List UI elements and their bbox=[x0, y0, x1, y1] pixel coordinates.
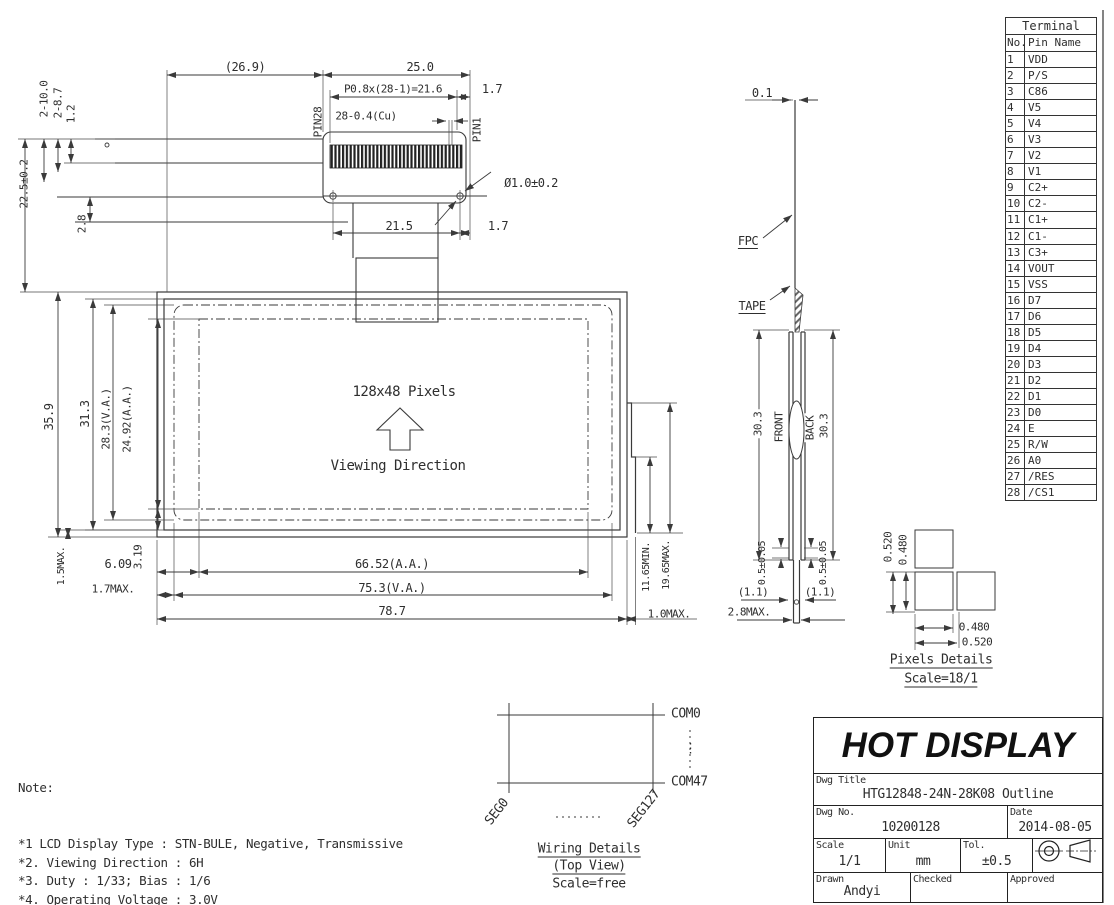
dim-0-5-left: 0.5±0.05 bbox=[758, 541, 768, 585]
terminal-pin-no: 14 bbox=[1006, 261, 1025, 276]
dim-0-1: 0.1 bbox=[752, 87, 772, 99]
terminal-row: 27/RES bbox=[1006, 469, 1096, 485]
terminal-pin-no: 4 bbox=[1006, 100, 1025, 115]
terminal-pin-no: 27 bbox=[1006, 469, 1025, 484]
terminal-pin-name: V2 bbox=[1025, 148, 1096, 163]
terminal-pin-name: VDD bbox=[1025, 52, 1096, 67]
terminal-row: 26A0 bbox=[1006, 453, 1096, 469]
unit-value: mm bbox=[886, 854, 960, 869]
tol-value: ±0.5 bbox=[961, 854, 1032, 869]
dim-28-3-va: 28.3(V.A.) bbox=[101, 388, 112, 449]
tape-hatch bbox=[795, 288, 803, 332]
terminal-pin-name: D5 bbox=[1025, 325, 1096, 340]
terminal-pin-no: 19 bbox=[1006, 341, 1025, 356]
terminal-row: 17D6 bbox=[1006, 309, 1096, 325]
dim-2-10-0: 2-10.0 bbox=[39, 81, 50, 118]
terminal-rows: 1VDD2P/S3C864V55V46V37V28V19C2+10C2-11C1… bbox=[1006, 52, 1096, 500]
company-logo: HOT DISPLAY bbox=[814, 718, 1102, 773]
pixels-details-scale: Scale=18/1 bbox=[904, 673, 977, 688]
dim-2-8-7: 2-8.7 bbox=[53, 88, 64, 119]
terminal-row: 22D1 bbox=[1006, 389, 1096, 405]
terminal-row: 12C1- bbox=[1006, 229, 1096, 245]
note-line: *1 LCD Display Type : STN-BULE, Negative… bbox=[18, 835, 403, 854]
terminal-pin-name: D0 bbox=[1025, 405, 1096, 420]
terminal-table-title: Terminal bbox=[1006, 18, 1096, 35]
dim-1-2: 1.2 bbox=[66, 105, 77, 123]
dim-2-8: 2.8 bbox=[77, 215, 88, 233]
terminal-row: 9C2+ bbox=[1006, 180, 1096, 196]
terminal-pin-no: 16 bbox=[1006, 293, 1025, 308]
dim-6-09: 6.09 bbox=[105, 558, 132, 570]
terminal-row: 6V3 bbox=[1006, 132, 1096, 148]
dwg-title-label: Dwg Title bbox=[816, 775, 866, 786]
pixels-count-label: 128x48 Pixels bbox=[352, 385, 455, 399]
notes-block: Note: *1 LCD Display Type : STN-BULE, Ne… bbox=[18, 742, 403, 905]
terminal-pin-no: 5 bbox=[1006, 116, 1025, 131]
dim-hole-dia: Ø1.0±0.2 bbox=[504, 177, 558, 189]
dim-3-19: 3.19 bbox=[133, 545, 144, 570]
side-view-oval bbox=[789, 401, 804, 459]
terminal-pin-no: 26 bbox=[1006, 453, 1025, 468]
fpc-pin-contacts bbox=[330, 145, 462, 168]
terminal-row: 5V4 bbox=[1006, 116, 1096, 132]
terminal-row: 25R/W bbox=[1006, 437, 1096, 453]
terminal-pin-no: 7 bbox=[1006, 148, 1025, 163]
pixel-dim-0-520-v: 0.520 bbox=[883, 532, 894, 563]
terminal-row: 7V2 bbox=[1006, 148, 1096, 164]
dim-0-5-right: 0.5±0.05 bbox=[819, 541, 829, 585]
com47-label: COM47 bbox=[671, 776, 708, 789]
lcd-module-outline bbox=[157, 292, 636, 537]
fpc-label: FPC bbox=[738, 235, 758, 249]
terminal-pin-name: D1 bbox=[1025, 389, 1096, 404]
terminal-pin-name: P/S bbox=[1025, 68, 1096, 83]
terminal-row: 8V1 bbox=[1006, 164, 1096, 180]
dim-1-7-top: 1.7 bbox=[482, 83, 502, 95]
terminal-row: 21D2 bbox=[1006, 373, 1096, 389]
pixel-squares bbox=[915, 530, 995, 610]
wiring-diagram bbox=[497, 703, 690, 817]
pixel-dim-0-480-h: 0.480 bbox=[959, 622, 990, 633]
approved-label: Approved bbox=[1010, 874, 1054, 885]
wiring-details-title: Wiring Details bbox=[538, 843, 641, 858]
date-value: 2014-08-05 bbox=[1008, 820, 1102, 835]
notes-lines: *1 LCD Display Type : STN-BULE, Negative… bbox=[18, 835, 403, 905]
dim-30-3-left: 30.3 bbox=[753, 410, 764, 439]
terminal-pin-no: 1 bbox=[1006, 52, 1025, 67]
dim-24-92-aa: 24.92(A.A.) bbox=[122, 385, 133, 452]
terminal-pin-name: V1 bbox=[1025, 164, 1096, 179]
tape-label: TAPE bbox=[739, 300, 766, 314]
terminal-pin-name: V4 bbox=[1025, 116, 1096, 131]
terminal-pin-name: D4 bbox=[1025, 341, 1096, 356]
terminal-row: 16D7 bbox=[1006, 293, 1096, 309]
terminal-pin-no: 22 bbox=[1006, 389, 1025, 404]
terminal-pin-no: 21 bbox=[1006, 373, 1025, 388]
dim-1-7max: 1.7MAX. bbox=[92, 584, 135, 595]
terminal-pin-name: V5 bbox=[1025, 100, 1096, 115]
scale-label: Scale bbox=[816, 840, 844, 851]
terminal-pin-name: A0 bbox=[1025, 453, 1096, 468]
dwg-no-value: 10200128 bbox=[814, 820, 1007, 835]
terminal-table-header: No. Pin Name bbox=[1006, 35, 1096, 52]
com0-label: COM0 bbox=[671, 708, 700, 721]
unit-label: Unit bbox=[888, 840, 910, 851]
terminal-row: 14VOUT bbox=[1006, 261, 1096, 277]
dim-11-65min: 11.65MIN. bbox=[642, 542, 652, 592]
terminal-row: 4V5 bbox=[1006, 100, 1096, 116]
terminal-pin-name: /RES bbox=[1025, 469, 1096, 484]
terminal-pin-no: 25 bbox=[1006, 437, 1025, 452]
terminal-row: 19D4 bbox=[1006, 341, 1096, 357]
dim-1-7-mid: 1.7 bbox=[488, 220, 508, 232]
terminal-pin-no: 2 bbox=[1006, 68, 1025, 83]
checked-label: Checked bbox=[913, 874, 952, 885]
dim-1-1-left: (1.1) bbox=[738, 587, 769, 598]
note-line: *3. Duty : 1/33; Bias : 1/6 bbox=[18, 872, 403, 891]
side-view-outline bbox=[789, 100, 805, 623]
terminal-pin-name: C3+ bbox=[1025, 245, 1096, 260]
pin1-label: PIN1 bbox=[472, 118, 483, 143]
terminal-col-pin: Pin Name bbox=[1025, 35, 1096, 51]
terminal-pin-no: 11 bbox=[1006, 212, 1025, 227]
tol-label: Tol. bbox=[963, 840, 985, 851]
terminal-pin-name: VOUT bbox=[1025, 261, 1096, 276]
dim-1-5max: 1.5MAX. bbox=[57, 547, 67, 586]
terminal-row: 10C2- bbox=[1006, 196, 1096, 212]
viewing-active-area bbox=[174, 305, 612, 520]
terminal-pin-name: R/W bbox=[1025, 437, 1096, 452]
terminal-row: 15VSS bbox=[1006, 277, 1096, 293]
pin28-label: PIN28 bbox=[313, 107, 324, 138]
terminal-pin-name: C86 bbox=[1025, 84, 1096, 99]
terminal-pin-name: C2+ bbox=[1025, 180, 1096, 195]
terminal-pin-no: 10 bbox=[1006, 196, 1025, 211]
terminal-pin-name: /CS1 bbox=[1025, 485, 1096, 500]
com-ellipsis: ⋮ bbox=[684, 743, 697, 756]
dim-22-5: 22.5±0.2 bbox=[19, 160, 30, 209]
viewing-direction-arrow bbox=[377, 408, 423, 450]
front-label: FRONT bbox=[774, 410, 785, 445]
terminal-pin-no: 20 bbox=[1006, 357, 1025, 372]
drawn-value: Andyi bbox=[814, 884, 910, 899]
dim-66-52-aa: 66.52(A.A.) bbox=[355, 558, 429, 570]
terminal-pin-no: 3 bbox=[1006, 84, 1025, 99]
terminal-pin-name: C1+ bbox=[1025, 212, 1096, 227]
terminal-pin-name: D7 bbox=[1025, 293, 1096, 308]
terminal-row: 2P/S bbox=[1006, 68, 1096, 84]
terminal-row: 28/CS1 bbox=[1006, 485, 1096, 500]
terminal-pin-no: 9 bbox=[1006, 180, 1025, 195]
terminal-row: 20D3 bbox=[1006, 357, 1096, 373]
dim-75-3-va: 75.3(V.A.) bbox=[358, 582, 425, 594]
dwg-title-value: HTG12848-24N-28K08 Outline bbox=[814, 787, 1102, 802]
title-block: HOT DISPLAY Dwg Title HTG12848-24N-28K08… bbox=[813, 717, 1103, 903]
dim-overall-26-9: (26.9) bbox=[225, 61, 265, 73]
terminal-pin-name: VSS bbox=[1025, 277, 1096, 292]
terminal-pin-name: V3 bbox=[1025, 132, 1096, 147]
terminal-col-no: No. bbox=[1006, 35, 1025, 51]
viewing-direction-label: Viewing Direction bbox=[331, 459, 466, 473]
terminal-pin-name: D3 bbox=[1025, 357, 1096, 372]
dwg-no-label: Dwg No. bbox=[816, 807, 855, 818]
pixels-details-title: Pixels Details bbox=[890, 654, 993, 669]
terminal-pin-no: 8 bbox=[1006, 164, 1025, 179]
notes-title: Note: bbox=[18, 779, 403, 798]
dim-21-5: 21.5 bbox=[386, 220, 413, 232]
pixel-dim-0-520-h: 0.520 bbox=[962, 637, 993, 648]
dim-1-0max: 1.0MAX. bbox=[648, 609, 691, 620]
terminal-row: 18D5 bbox=[1006, 325, 1096, 341]
wiring-details-subtitle: (Top View) bbox=[552, 860, 625, 875]
terminal-pin-no: 24 bbox=[1006, 421, 1025, 436]
note-line: *2. Viewing Direction : 6H bbox=[18, 854, 403, 873]
back-label: BACK bbox=[805, 414, 816, 443]
terminal-pin-no: 13 bbox=[1006, 245, 1025, 260]
terminal-pin-no: 6 bbox=[1006, 132, 1025, 147]
scale-value: 1/1 bbox=[814, 854, 885, 869]
terminal-pin-no: 23 bbox=[1006, 405, 1025, 420]
terminal-row: 23D0 bbox=[1006, 405, 1096, 421]
terminal-pin-no: 28 bbox=[1006, 485, 1025, 500]
dim-1-1-right: (1.1) bbox=[805, 587, 836, 598]
terminal-row: 3C86 bbox=[1006, 84, 1096, 100]
dim-31-3: 31.3 bbox=[79, 401, 91, 428]
wiring-details-scale: Scale=free bbox=[552, 878, 625, 891]
dim-78-7: 78.7 bbox=[379, 605, 406, 617]
terminal-pin-name: E bbox=[1025, 421, 1096, 436]
terminal-table: Terminal No. Pin Name 1VDD2P/S3C864V55V4… bbox=[1005, 17, 1097, 501]
terminal-pin-name: C2- bbox=[1025, 196, 1096, 211]
terminal-row: 13C3+ bbox=[1006, 245, 1096, 261]
dim-30-3-right: 30.3 bbox=[819, 412, 830, 441]
terminal-pin-name: D2 bbox=[1025, 373, 1096, 388]
dim-35-9: 35.9 bbox=[43, 404, 55, 431]
terminal-row: 11C1+ bbox=[1006, 212, 1096, 228]
dim-2-8max: 2.8MAX. bbox=[728, 607, 771, 618]
dim-19-65max: 19.65MAX. bbox=[662, 540, 672, 590]
note-line: *4. Operating Voltage : 3.0V bbox=[18, 891, 403, 905]
dim-copper-pads: 28-0.4(Cu) bbox=[335, 111, 396, 122]
terminal-pin-no: 12 bbox=[1006, 229, 1025, 244]
terminal-pin-no: 18 bbox=[1006, 325, 1025, 340]
terminal-pin-name: D6 bbox=[1025, 309, 1096, 324]
terminal-row: 1VDD bbox=[1006, 52, 1096, 68]
dim-25-0: 25.0 bbox=[407, 61, 434, 73]
engineering-drawing-sheet: (26.9) 25.0 P0.8x(28-1)=21.6 28-0.4(Cu) … bbox=[0, 0, 1114, 905]
dim-pin-pitch: P0.8x(28-1)=21.6 bbox=[344, 84, 442, 95]
terminal-pin-name: C1- bbox=[1025, 229, 1096, 244]
projection-symbol-cell bbox=[1033, 839, 1102, 872]
terminal-pin-no: 15 bbox=[1006, 277, 1025, 292]
terminal-row: 24E bbox=[1006, 421, 1096, 437]
pixel-dim-0-480-v: 0.480 bbox=[898, 535, 909, 566]
date-label: Date bbox=[1010, 807, 1032, 818]
terminal-pin-no: 17 bbox=[1006, 309, 1025, 324]
